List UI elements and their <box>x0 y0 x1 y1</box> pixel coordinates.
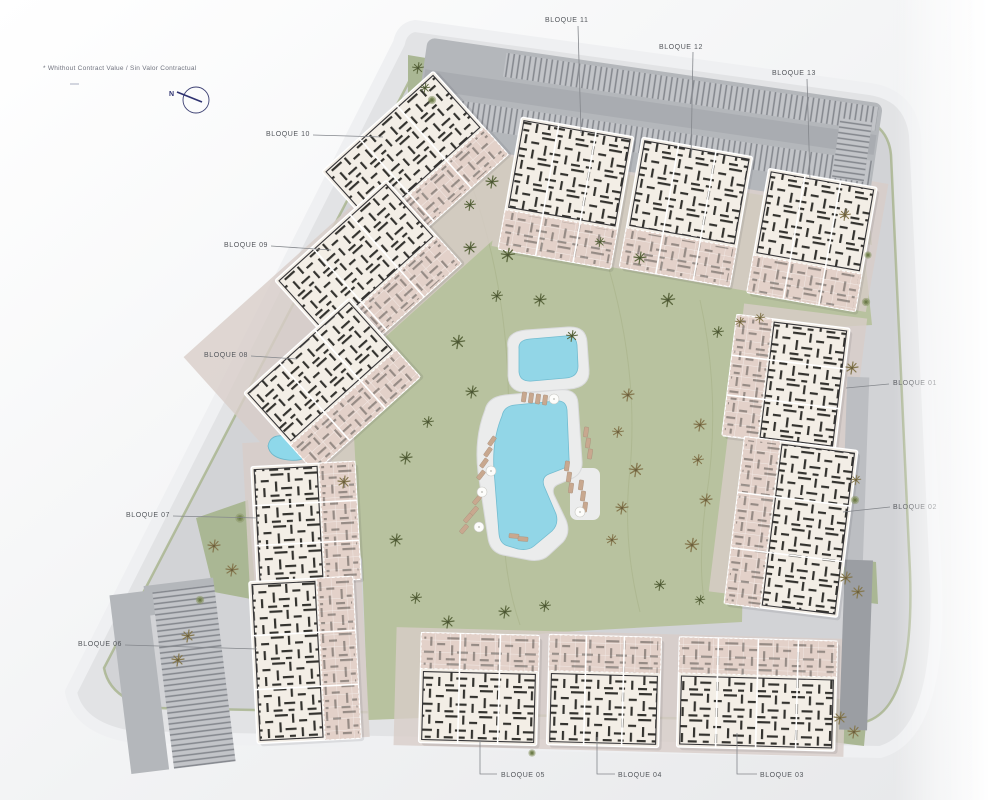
label-bloque-04: BLOQUE 04 <box>618 772 662 779</box>
disclaimer-text: * Whithout Contract Value / Sin Valor Co… <box>43 65 197 72</box>
site-plan-svg: BLOQUE 11 BLOQUE 12 BLOQUE 13 BLOQUE 10 … <box>0 0 988 800</box>
walls <box>550 674 658 745</box>
walls <box>630 141 749 244</box>
building-bloque-01 <box>722 315 853 453</box>
building-bloque-07 <box>251 461 364 587</box>
building-bloque-11 <box>498 117 637 272</box>
label-bloque-09: BLOQUE 09 <box>224 242 268 249</box>
walls <box>422 672 536 743</box>
walls <box>509 121 631 226</box>
building-bloque-03 <box>677 637 841 754</box>
building-bloque-05 <box>419 632 543 748</box>
label-bloque-11: BLOQUE 11 <box>545 17 588 24</box>
kids-pool <box>519 336 578 381</box>
walls <box>252 581 323 740</box>
walls <box>254 466 323 581</box>
building-bloque-04 <box>547 635 665 751</box>
label-bloque-10: BLOQUE 10 <box>266 131 310 138</box>
label-bloque-07: BLOQUE 07 <box>126 512 170 519</box>
walls <box>760 322 847 446</box>
label-bloque-05: BLOQUE 05 <box>501 772 545 779</box>
label-bloque-12: BLOQUE 12 <box>659 44 703 51</box>
building-bloque-02 <box>724 437 861 621</box>
label-bloque-06: BLOQUE 06 <box>78 641 122 648</box>
walls <box>757 172 874 271</box>
fade-overlay <box>893 0 988 800</box>
building-bloque-13 <box>746 168 880 315</box>
building-bloque-06 <box>249 576 364 746</box>
compass-north-label: N <box>169 91 174 98</box>
parking-southwest <box>109 578 236 774</box>
label-bloque-13: BLOQUE 13 <box>772 70 816 77</box>
label-bloque-08: BLOQUE 08 <box>204 352 248 359</box>
label-bloque-03: BLOQUE 03 <box>760 772 804 779</box>
building-bloque-12 <box>619 137 756 290</box>
site-plan: BLOQUE 11 BLOQUE 12 BLOQUE 13 BLOQUE 10 … <box>0 0 988 800</box>
